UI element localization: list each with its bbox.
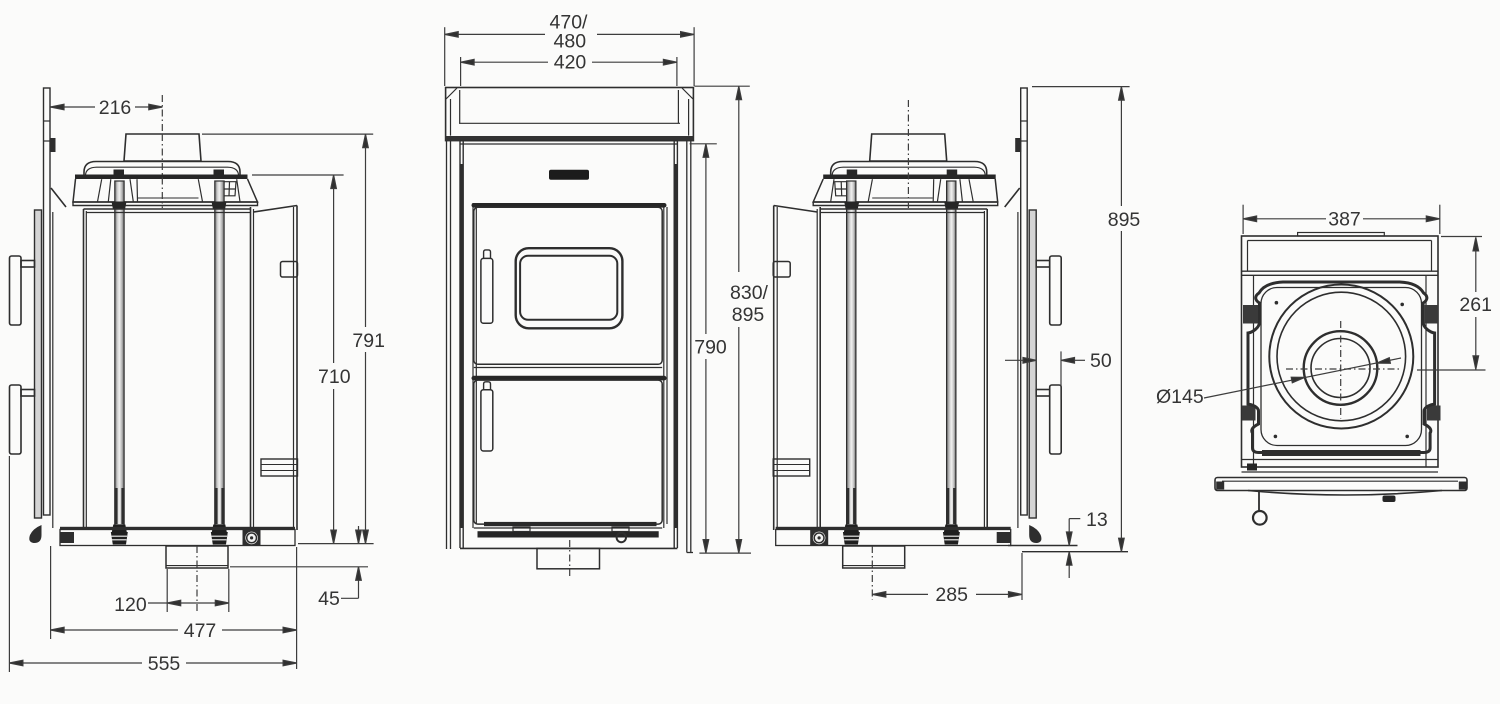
svg-text:895: 895 (732, 304, 765, 326)
svg-text:285: 285 (935, 584, 968, 606)
svg-text:Ø145: Ø145 (1156, 386, 1204, 408)
svg-text:477: 477 (184, 620, 217, 642)
svg-text:830/: 830/ (730, 282, 769, 304)
svg-text:261: 261 (1459, 294, 1492, 316)
svg-text:387: 387 (1328, 209, 1361, 231)
svg-text:420: 420 (554, 52, 587, 74)
svg-text:791: 791 (352, 330, 385, 352)
svg-text:13: 13 (1086, 509, 1108, 531)
svg-text:555: 555 (148, 653, 181, 675)
svg-text:710: 710 (318, 366, 351, 388)
svg-text:216: 216 (99, 97, 132, 119)
svg-text:45: 45 (318, 588, 340, 610)
svg-text:120: 120 (114, 594, 147, 616)
svg-text:480: 480 (554, 31, 587, 53)
svg-text:895: 895 (1108, 209, 1141, 231)
svg-text:50: 50 (1090, 350, 1112, 372)
svg-text:790: 790 (694, 337, 727, 359)
